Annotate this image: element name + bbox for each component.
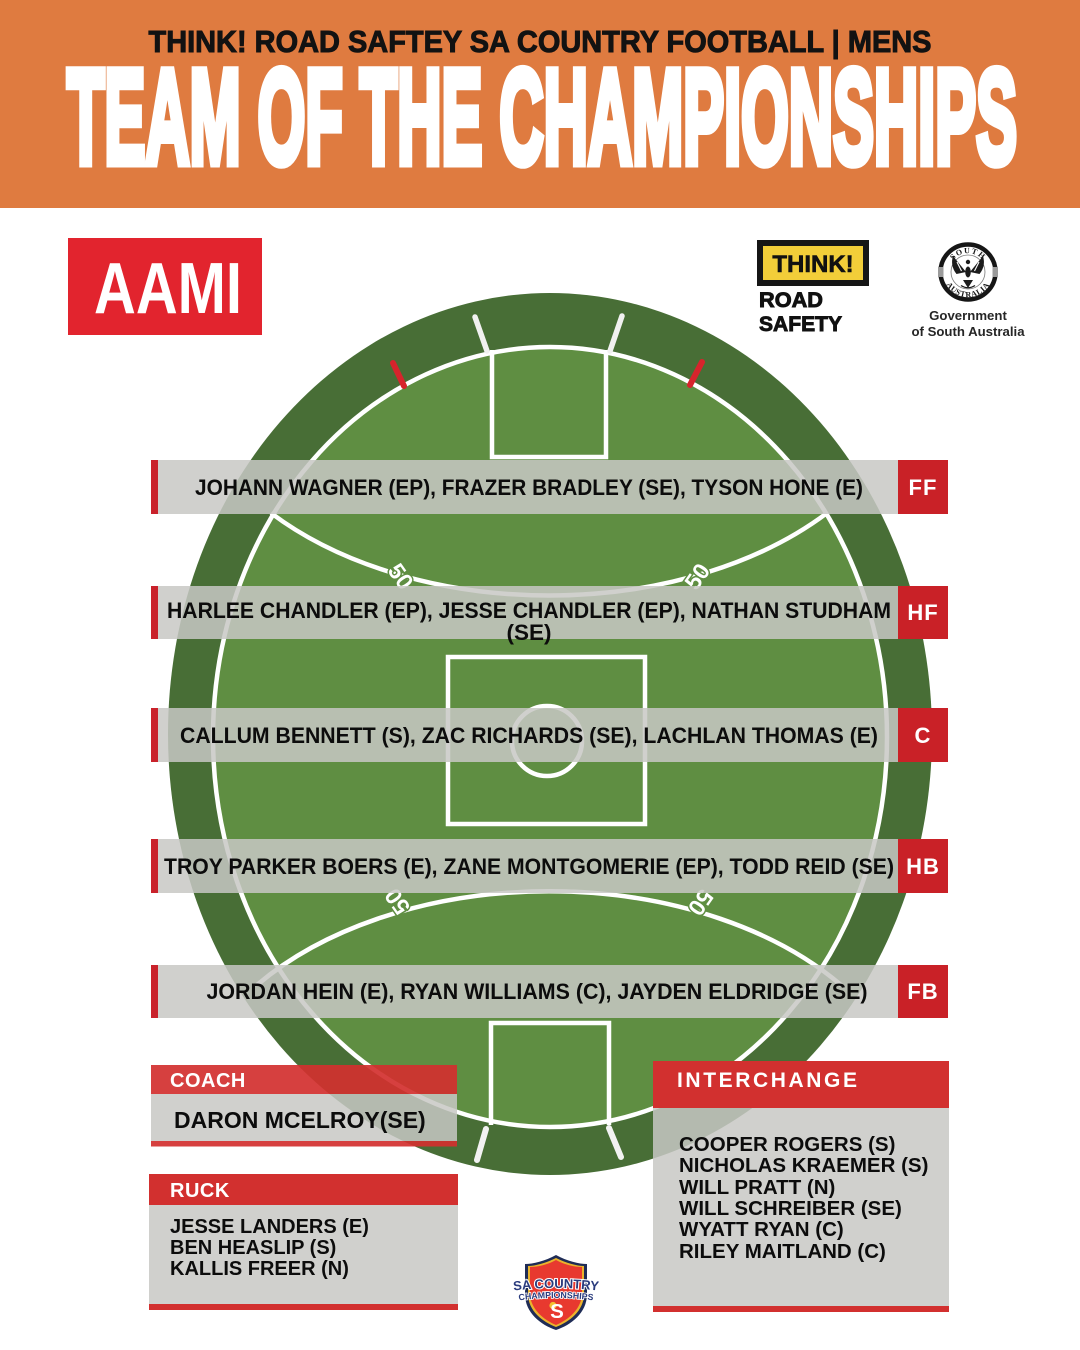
svg-text:JESSE LANDERS (E): JESSE LANDERS (E) — [170, 1216, 369, 1238]
svg-text:DARON MCELROY(SE): DARON MCELROY(SE) — [174, 1107, 426, 1133]
svg-text:FF: FF — [909, 475, 938, 500]
svg-text:THINK!: THINK! — [772, 251, 853, 278]
svg-text:WYATT RYAN (C): WYATT RYAN (C) — [679, 1218, 844, 1241]
svg-text:KALLIS FREER (N): KALLIS FREER (N) — [170, 1258, 349, 1280]
svg-text:JORDAN HEIN (E), RYAN WILLIAMS: JORDAN HEIN (E), RYAN WILLIAMS (C), JAYD… — [207, 979, 868, 1004]
svg-text:COACH: COACH — [170, 1070, 246, 1092]
svg-text:RILEY MAITLAND (C): RILEY MAITLAND (C) — [679, 1240, 886, 1263]
svg-text:NICHOLAS KRAEMER (S): NICHOLAS KRAEMER (S) — [679, 1154, 928, 1177]
svg-text:TROY PARKER BOERS (E), ZANE MO: TROY PARKER BOERS (E), ZANE MONTGOMERIE … — [164, 854, 894, 879]
svg-text:JOHANN WAGNER (EP), FRAZER BRA: JOHANN WAGNER (EP), FRAZER BRADLEY (SE),… — [195, 475, 863, 500]
svg-text:AAMI: AAMI — [94, 249, 242, 329]
svg-text:CALLUM BENNETT (S), ZAC RICHAR: CALLUM BENNETT (S), ZAC RICHARDS (SE), L… — [180, 723, 878, 748]
svg-text:of South Australia: of South Australia — [911, 324, 1025, 339]
svg-text:HB: HB — [906, 854, 940, 879]
svg-text:INTERCHANGE: INTERCHANGE — [677, 1069, 860, 1092]
svg-text:S: S — [550, 1300, 564, 1323]
svg-text:TEAM OF THE CHAMPIONSHIPS: TEAM OF THE CHAMPIONSHIPS — [67, 43, 1017, 192]
svg-text:BEN HEASLIP (S): BEN HEASLIP (S) — [170, 1237, 336, 1259]
svg-text:COOPER ROGERS (S): COOPER ROGERS (S) — [679, 1133, 895, 1156]
svg-text:Government: Government — [929, 308, 1007, 323]
svg-text:WILL SCHREIBER (SE): WILL SCHREIBER (SE) — [679, 1197, 902, 1220]
svg-text:SAFETY: SAFETY — [759, 313, 842, 336]
svg-text:ROAD: ROAD — [759, 289, 823, 312]
svg-text:RUCK: RUCK — [170, 1180, 230, 1202]
svg-text:C: C — [915, 723, 932, 748]
svg-text:HF: HF — [907, 600, 938, 625]
svg-text:WILL PRATT (N): WILL PRATT (N) — [679, 1176, 835, 1199]
svg-text:(SE): (SE) — [507, 620, 552, 645]
svg-text:FB: FB — [907, 979, 938, 1004]
